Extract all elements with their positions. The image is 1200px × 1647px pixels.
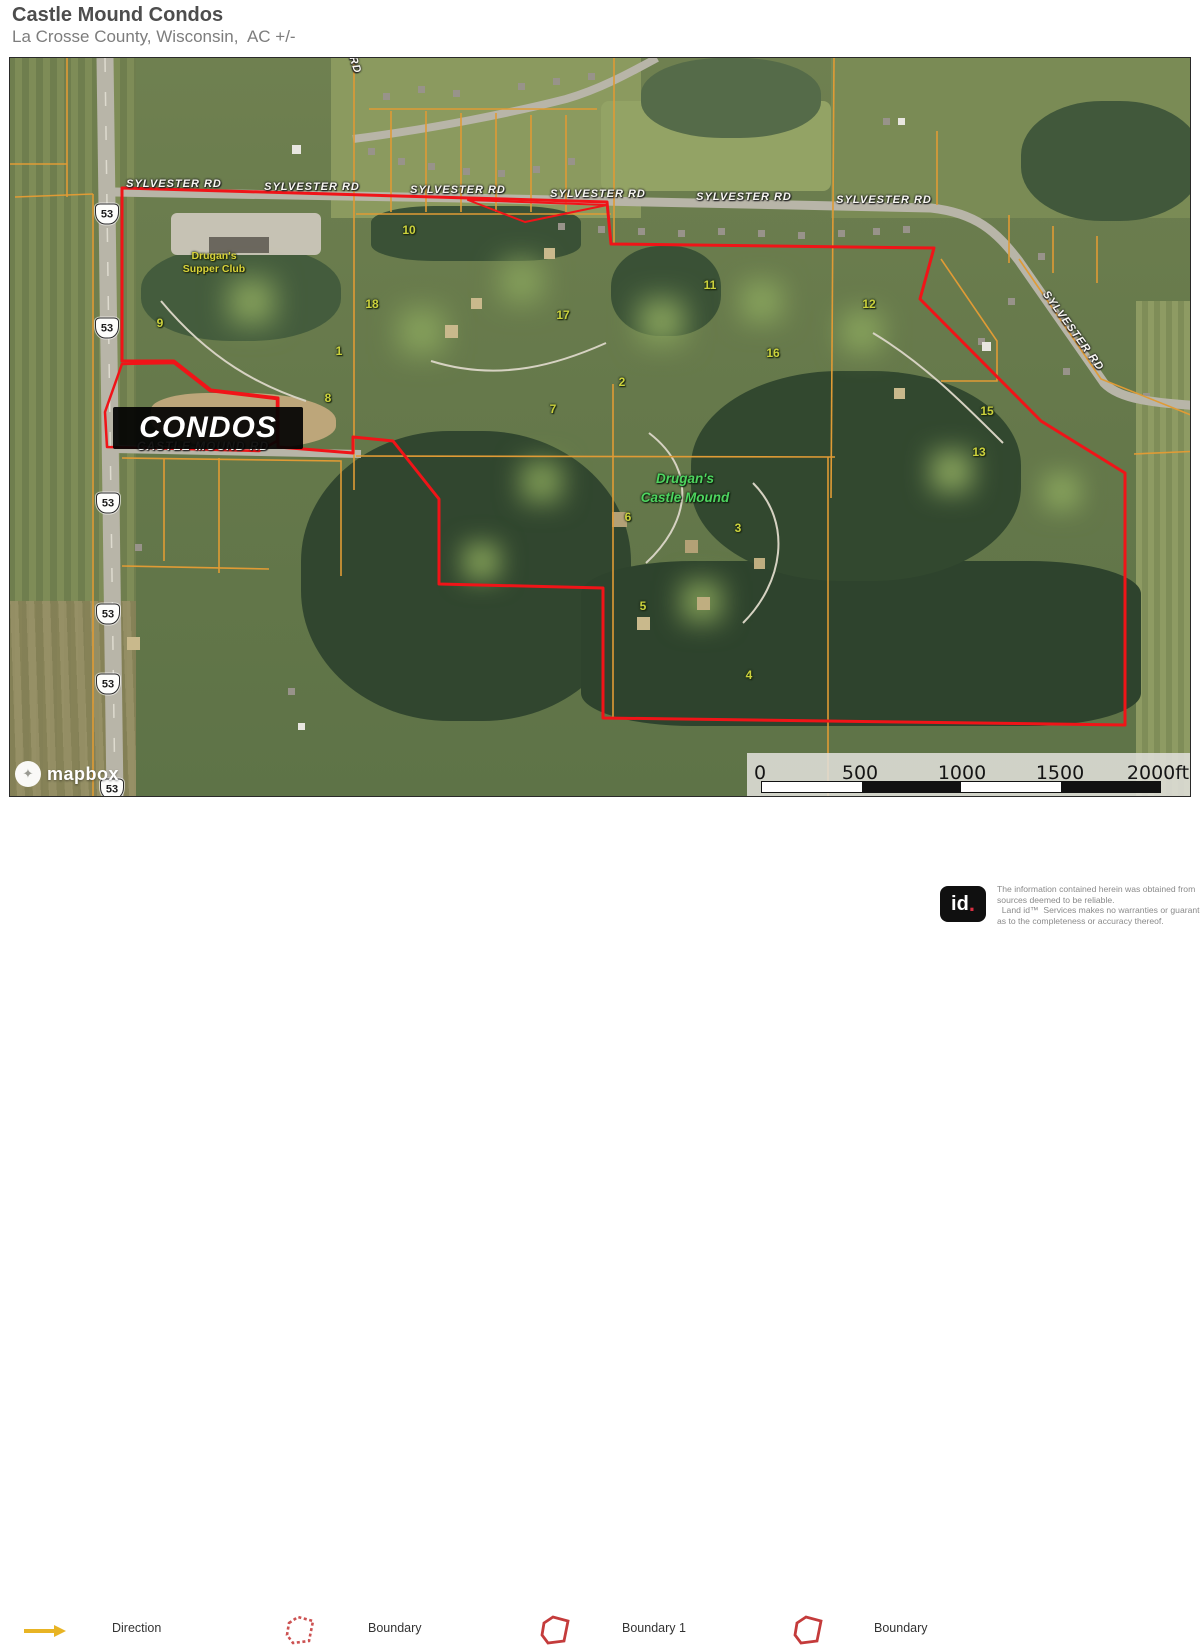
poi-castle-mound-line1: Drugan's bbox=[641, 469, 730, 488]
shield-number: 53 bbox=[102, 608, 114, 620]
scale-segment bbox=[1061, 782, 1161, 792]
highway-53-shield: 53 bbox=[95, 204, 119, 225]
boundary1-solid-icon bbox=[536, 1614, 574, 1647]
legend-label-boundary1: Boundary 1 bbox=[622, 1621, 686, 1635]
road-label-sylvester: SYLVESTER RD bbox=[410, 184, 506, 196]
hole-number: 11 bbox=[704, 278, 717, 292]
road-label-sylvester: SYLVESTER RD bbox=[836, 194, 932, 206]
shield-number: 53 bbox=[101, 208, 113, 220]
disclaimer-line: Land id™ Services makes no warranties or… bbox=[997, 905, 1200, 916]
poi-castle-mound: Drugan's Castle Mound bbox=[641, 469, 730, 507]
disclaimer-line: as to the completeness or accuracy there… bbox=[997, 916, 1200, 927]
direction-arrow-icon bbox=[22, 1623, 68, 1639]
scale-segment bbox=[762, 782, 862, 792]
hole-number: 17 bbox=[556, 308, 569, 322]
highway-53-shield: 53 bbox=[95, 318, 119, 339]
page-title: Castle Mound Condos bbox=[12, 4, 223, 27]
scale-segment bbox=[961, 782, 1061, 792]
condos-label-text: CONDOS bbox=[139, 411, 277, 445]
poi-castle-mound-line2: Castle Mound bbox=[641, 488, 730, 507]
disclaimer-line: The information contained herein was obt… bbox=[997, 884, 1200, 895]
hole-number: 2 bbox=[619, 375, 626, 389]
map-legend: Direction Boundary Boundary 1 Boundary bbox=[0, 805, 1200, 847]
hole-number: 6 bbox=[625, 510, 632, 524]
hole-number: 4 bbox=[746, 668, 753, 682]
parcel-line bbox=[831, 58, 834, 498]
satellite-layer: SYLVESTER RD SYLVESTER RD SYLVESTER RD S… bbox=[9, 57, 1191, 797]
road-label-sylvester: SYLVESTER RD bbox=[264, 181, 360, 193]
legend-label-boundary: Boundary bbox=[368, 1621, 422, 1635]
parcel-line bbox=[941, 259, 997, 381]
condos-label: CONDOS bbox=[113, 407, 303, 449]
property-boundary-sliver bbox=[468, 200, 607, 222]
land-id-logo-text: id bbox=[951, 893, 969, 916]
road-label-sylvester: SYLVESTER RD bbox=[550, 188, 646, 200]
hole-number: 9 bbox=[157, 316, 164, 330]
highway-53-shield: 53 bbox=[96, 604, 120, 625]
cart-paths bbox=[161, 301, 1003, 623]
shield-number: 53 bbox=[101, 322, 113, 334]
hole-number: 13 bbox=[972, 445, 985, 459]
hole-number: 7 bbox=[550, 402, 557, 416]
hole-number: 5 bbox=[640, 599, 647, 613]
legend-label-direction: Direction bbox=[112, 1621, 161, 1635]
hole-number: 8 bbox=[325, 391, 332, 405]
road-label-sylvester: SYLVESTER RD bbox=[696, 191, 792, 203]
hole-number: 12 bbox=[862, 297, 875, 311]
highway-53-shield: 53 bbox=[96, 674, 120, 695]
hole-number: 3 bbox=[735, 521, 742, 535]
map-viewport[interactable]: SYLVESTER RD SYLVESTER RD SYLVESTER RD S… bbox=[9, 57, 1191, 797]
parcel-line bbox=[15, 194, 93, 197]
scale-segment bbox=[862, 782, 962, 792]
scale-bar-segments bbox=[761, 781, 1161, 793]
land-id-logo-dot: . bbox=[969, 899, 975, 909]
parcel-line bbox=[1134, 451, 1191, 454]
highway-53-shield: 53 bbox=[96, 493, 120, 514]
boundary-dashed-icon bbox=[281, 1614, 319, 1647]
road-sylvester bbox=[114, 192, 1191, 406]
boundary-solid-icon bbox=[789, 1614, 827, 1647]
mapbox-attribution[interactable]: ✦ mapbox bbox=[15, 761, 119, 787]
mapbox-logo-icon: ✦ bbox=[15, 761, 41, 787]
poi-supper-club-line1: Drugan's bbox=[183, 250, 245, 263]
hole-number: 1 bbox=[336, 344, 343, 358]
parcel-line bbox=[122, 458, 341, 576]
shield-number: 53 bbox=[102, 678, 114, 690]
scale-bar: 0 500 1000 1500 2000ft bbox=[747, 753, 1191, 797]
poi-supper-club: Drugan's Supper Club bbox=[183, 250, 245, 276]
parcel-line bbox=[122, 566, 269, 569]
poi-supper-club-line2: Supper Club bbox=[183, 263, 245, 276]
shield-number: 53 bbox=[102, 497, 114, 509]
disclaimer-line: sources deemed to be reliable. bbox=[997, 895, 1200, 906]
hole-number: 18 bbox=[365, 297, 378, 311]
page-subtitle: La Crosse County, Wisconsin, AC +/- bbox=[12, 27, 296, 47]
hole-number: 16 bbox=[766, 346, 779, 360]
disclaimer-text: The information contained herein was obt… bbox=[997, 884, 1200, 926]
hole-number: 10 bbox=[402, 223, 415, 237]
parcel-line bbox=[1019, 259, 1191, 419]
road-neighborhood bbox=[353, 58, 657, 139]
legend-label-boundary2: Boundary bbox=[874, 1621, 928, 1635]
land-id-logo: id. bbox=[940, 886, 986, 922]
mapbox-logo-text: mapbox bbox=[47, 764, 119, 785]
parcel-line bbox=[356, 456, 835, 457]
road-label-sylvester: SYLVESTER RD bbox=[126, 178, 222, 190]
hole-number: 15 bbox=[980, 404, 993, 418]
